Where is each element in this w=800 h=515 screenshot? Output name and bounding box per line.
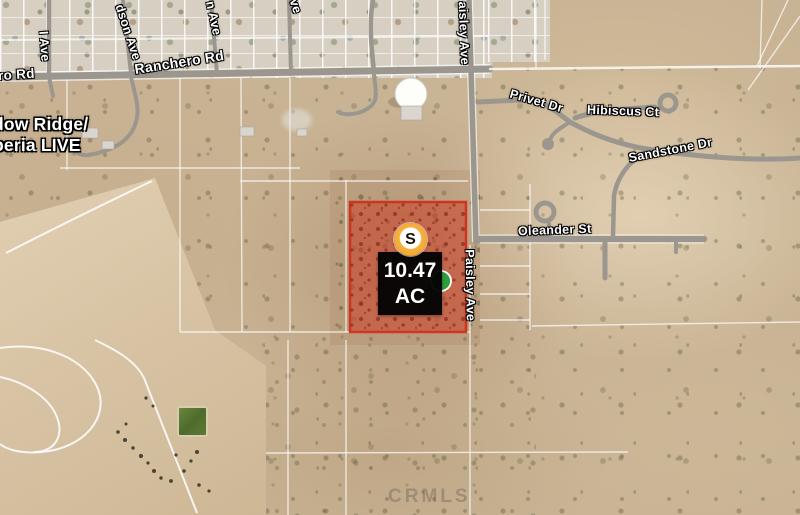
listing-marker-letter: S [405, 231, 416, 249]
area-label-line2: peria LIVE [0, 135, 88, 156]
graded-area-tracks [0, 181, 197, 513]
water-tank [395, 78, 427, 110]
acreage-unit: AC [395, 284, 425, 310]
green-pond [178, 407, 207, 436]
street-label-oleander-st: Oleander St [518, 223, 592, 238]
satellite-map[interactable]: I Ave dson Ave n Ave ve ro Rd Ranchero R… [0, 0, 800, 515]
listing-marker[interactable]: S [394, 223, 427, 256]
area-label: dow Ridge/ peria LIVE [0, 114, 88, 156]
street-label-ro-rd: ro Rd [0, 67, 35, 83]
street-label-i-ave: I Ave [37, 31, 52, 62]
dry-pond [282, 109, 312, 131]
ranchero-road [0, 69, 490, 77]
acreage-value: 10.47 [384, 258, 437, 284]
acreage-box: 10.47 AC [378, 252, 442, 315]
street-label-paisley-ave: Paisley Ave [463, 249, 477, 321]
j-hook-road [338, 75, 376, 114]
street-label-hibiscus-ct: Hibiscus Ct [587, 104, 659, 119]
street-label-paisley-ave-top: aisley Ave [456, 1, 471, 65]
crmls-watermark: CRMLS [388, 486, 471, 508]
area-label-line1: dow Ridge/ [0, 114, 88, 135]
